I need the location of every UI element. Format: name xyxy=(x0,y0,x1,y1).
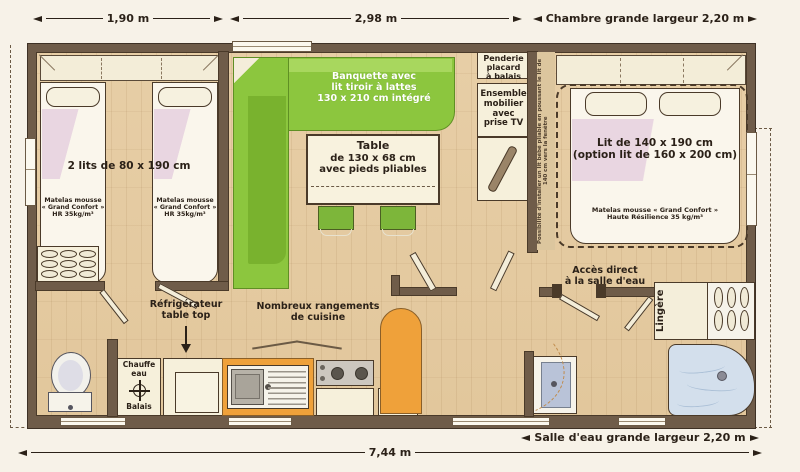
linen-icon xyxy=(41,250,58,258)
burner-icon xyxy=(355,367,368,380)
linen-icon xyxy=(60,270,77,278)
arrow-right-icon xyxy=(750,435,759,441)
kitchen-cabinet xyxy=(316,388,374,416)
linen-icon xyxy=(714,287,723,308)
linen-icon xyxy=(41,270,58,278)
window-bottom xyxy=(60,417,126,426)
sink-unit xyxy=(227,365,309,409)
dimension-298: 2,98 m xyxy=(230,12,522,25)
arrow-down-icon xyxy=(181,344,191,353)
chair-base xyxy=(382,229,414,236)
fridge-label: Réfrigérateur table top xyxy=(128,300,244,322)
dashed-outline-left-tick xyxy=(10,427,30,428)
chair xyxy=(318,206,354,230)
linen-icon xyxy=(41,260,58,268)
linen-shelves xyxy=(707,283,754,339)
dimension-label: Chambre grande largeur 2,20 m xyxy=(546,12,745,25)
single-bed-2: Matelas mousse « Grand Confort » HR 35kg… xyxy=(152,82,218,283)
fridge-door xyxy=(175,372,219,413)
knob-icon xyxy=(320,376,325,381)
arrow-left-icon xyxy=(230,16,239,22)
window-left xyxy=(25,138,36,206)
pillow-icon xyxy=(158,87,212,107)
arrow-right-icon xyxy=(748,16,757,22)
ironing-board-icon xyxy=(487,145,518,193)
pillow-icon xyxy=(46,87,100,107)
window-bottom xyxy=(618,417,666,426)
knob-icon xyxy=(320,365,325,370)
toilet-tank xyxy=(48,392,92,412)
linen-icon xyxy=(727,310,736,331)
dashed-outline-left xyxy=(10,45,11,428)
dashed-outline-right-tick-bottom xyxy=(754,427,772,428)
linen-icon xyxy=(79,270,96,278)
arrow-right-icon xyxy=(513,16,522,22)
headboard-divider xyxy=(620,58,621,83)
wall-left-bedroom-right xyxy=(219,52,228,289)
baby-bed-note: Possibilité d'installer un lit bébé plia… xyxy=(537,52,555,250)
window-top xyxy=(232,41,312,52)
water-heater-symbol-icon xyxy=(139,380,141,401)
arrow-right-icon xyxy=(753,450,762,456)
linen-icon xyxy=(740,310,749,331)
linen-icon xyxy=(740,287,749,308)
arrow-left-icon xyxy=(18,450,27,456)
linen-icon xyxy=(79,250,96,258)
table-fold-line xyxy=(311,186,435,187)
water-heater-closet: Chauffe eau Balais xyxy=(117,358,161,416)
toilet-button-icon xyxy=(68,405,73,410)
door-hinge xyxy=(596,284,606,298)
fridge xyxy=(163,358,223,416)
sink-basin-inner xyxy=(235,374,260,399)
dimension-salle-eau: Salle d'eau grande largeur 2,20 m xyxy=(518,431,762,444)
drainer xyxy=(268,369,306,405)
dimension-label: 1,90 m xyxy=(107,12,149,25)
arrow-left-icon xyxy=(533,16,542,22)
dimension-total: 7,44 m xyxy=(18,446,762,459)
linen-icon xyxy=(79,260,96,268)
mattress-label: Matelas mousse « Grand Confort » HR 35kg… xyxy=(41,197,105,219)
dimension-label: Salle d'eau grande largeur 2,20 m xyxy=(534,431,745,444)
stove xyxy=(316,360,374,386)
shower xyxy=(668,344,755,416)
water-wave-icon xyxy=(677,396,720,409)
dimension-label: 2,98 m xyxy=(355,12,397,25)
floorplan: 1,90 m 2,98 m Chambre grande largeur 2,2… xyxy=(0,0,800,472)
mattress-label: Matelas mousse « Grand Confort » Haute R… xyxy=(571,207,739,222)
drain-icon xyxy=(717,371,727,381)
arrow-right-icon xyxy=(214,16,223,22)
linen-icon xyxy=(60,250,77,258)
window-bottom xyxy=(228,417,292,426)
bed-label: Lit de 140 x 190 cm (option lit de 160 x… xyxy=(563,137,747,161)
sink-basin xyxy=(231,369,264,405)
pillow-icon xyxy=(585,92,647,116)
dashed-outline-right xyxy=(770,128,771,428)
toilet-bowl-inner xyxy=(58,360,83,391)
wall-stub xyxy=(392,276,399,295)
linen-icon xyxy=(727,287,736,308)
left-bedroom-label: 2 lits de 80 x 190 cm xyxy=(36,160,222,172)
shelf-unit xyxy=(37,246,99,282)
linen-icon xyxy=(60,260,77,268)
kitchen-counter-orange xyxy=(222,358,314,416)
headboard-divider xyxy=(161,58,162,79)
linen-closet-label: Lingère xyxy=(655,283,707,339)
left-bedroom-headboard xyxy=(40,55,220,81)
dimension-190: 1,90 m xyxy=(33,12,223,25)
storage-compartment xyxy=(477,137,530,201)
wall-bedroom2-left xyxy=(528,52,537,252)
tv-cabinet: Ensemble mobilier avec prise TV xyxy=(477,83,530,137)
kitchen-storage-label: Nombreux rangements de cuisine xyxy=(240,302,396,324)
table: Table de 130 x 68 cm avec pieds pliables xyxy=(306,134,440,205)
banquette-corner-fold xyxy=(234,58,260,84)
window-bottom xyxy=(452,417,550,426)
dimension-label: 7,44 m xyxy=(369,446,411,459)
wall-stub xyxy=(392,288,456,295)
banquette-label: Banquette avec lit tiroir à lattes 130 x… xyxy=(296,72,452,105)
pillow-icon xyxy=(659,92,721,116)
banquette-arm-cushion xyxy=(248,96,286,264)
chair xyxy=(380,206,416,230)
linen-icon xyxy=(714,310,723,331)
dimension-chambre: Chambre grande largeur 2,20 m xyxy=(528,12,762,25)
window-right xyxy=(746,132,757,226)
wall-bathroom-top xyxy=(604,288,660,296)
headboard-divider xyxy=(101,58,102,79)
headboard-divider xyxy=(683,58,684,83)
wall-wc xyxy=(108,340,117,416)
burner-icon xyxy=(331,367,344,380)
chair-base xyxy=(320,229,352,236)
right-bedroom-headboard xyxy=(556,55,746,85)
wall-left-bedroom-bottom xyxy=(36,282,104,290)
arrow-left-icon xyxy=(521,435,530,441)
arrow-down-icon xyxy=(185,326,187,344)
wardrobe-broom-closet: Penderie placard à balais xyxy=(477,52,530,79)
broom-label: Balais xyxy=(118,403,160,412)
double-bed: Lit de 140 x 190 cm (option lit de 160 x… xyxy=(570,88,740,244)
water-wave-icon xyxy=(687,379,738,392)
linen-closet: Lingère xyxy=(654,282,755,340)
water-heater-label: Chauffe eau xyxy=(118,359,160,378)
mattress-label: Matelas mousse « Grand Confort » HR 35kg… xyxy=(153,197,217,219)
arrow-left-icon xyxy=(33,16,42,22)
dashed-outline-right-tick-top xyxy=(754,128,772,129)
table-label: Table de 130 x 68 cm avec pieds pliables xyxy=(310,140,436,176)
